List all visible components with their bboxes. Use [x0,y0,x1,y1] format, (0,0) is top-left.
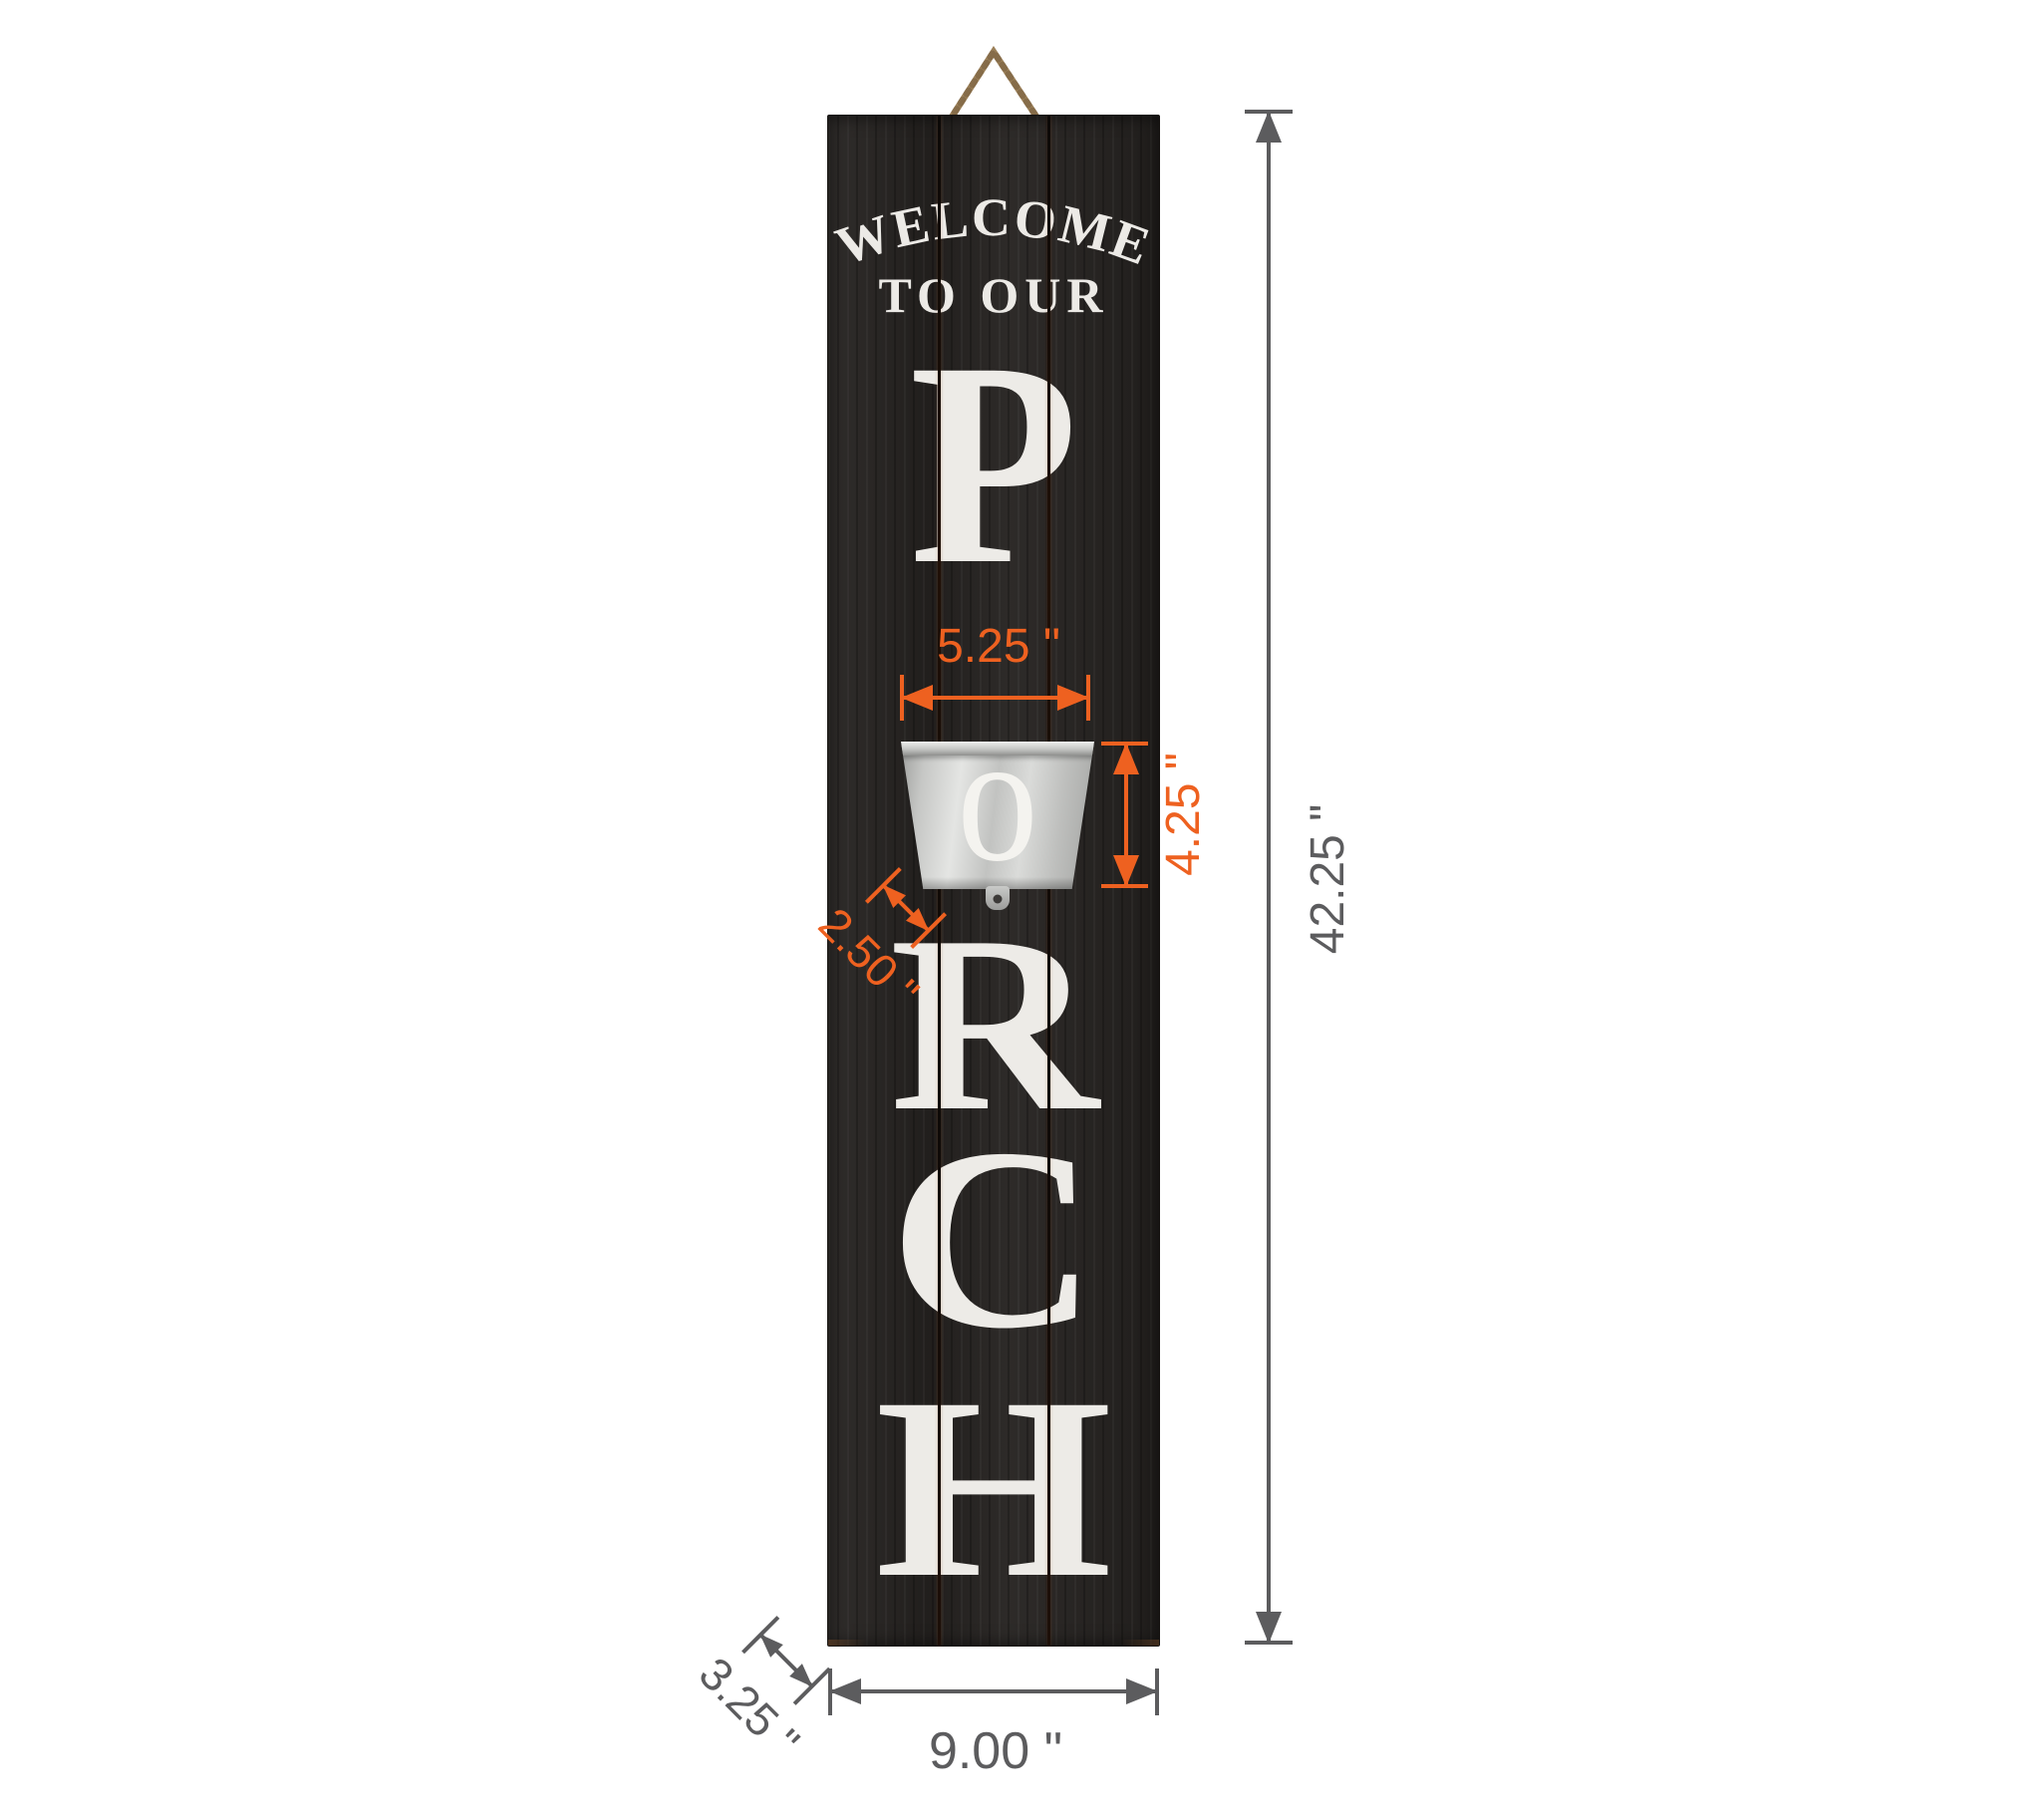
planter-height-tick-top [1101,742,1148,746]
product-dimension-diagram: WELCOME TO OUR P R C H o 5.25 " 4.25 " [0,0,2044,1817]
planter-depth-arrow-line [882,884,930,932]
sign-width-label: 9.00 " [929,1725,1062,1777]
bucket-letter-o: o [957,706,1037,890]
sign-height-tick-bottom [1245,1641,1293,1645]
sign-height-tick-top [1245,110,1293,114]
hanging-rope [932,28,1061,128]
letter-c: C [828,1109,1159,1368]
planter-height-label: 4.25 " [1160,753,1208,876]
planter-height-arrow [1124,744,1128,886]
planter-width-label: 5.25 " [937,623,1060,671]
sign-width-arrow [830,1689,1157,1693]
welcome-text: WELCOME [828,187,1159,277]
letter-p: P [828,319,1159,610]
planter-width-arrow [902,696,1088,700]
sign-height-arrow [1267,112,1271,1643]
sign-height-label: 42.25 " [1305,804,1352,955]
planter-width-tick-right [1086,675,1090,721]
letter-p-glyph: P [909,319,1077,610]
sign-depth-arrow-line [759,1634,813,1687]
rope-line [949,52,1038,122]
letter-h: H [828,1359,1159,1618]
rope-twist-texture [949,52,1038,122]
porch-sign-board: WELCOME TO OUR P R C H o [827,115,1160,1647]
board-edge-wear [828,1640,1159,1646]
sign-width-tick-left [828,1668,832,1715]
planter-height-tick-bottom [1101,884,1148,888]
letter-h-glyph: H [875,1359,1113,1618]
metal-bucket-planter: o [901,742,1094,889]
letter-c-glyph: C [889,1109,1098,1368]
planter-width-tick-left [900,675,904,721]
sign-width-tick-right [1155,1668,1159,1715]
